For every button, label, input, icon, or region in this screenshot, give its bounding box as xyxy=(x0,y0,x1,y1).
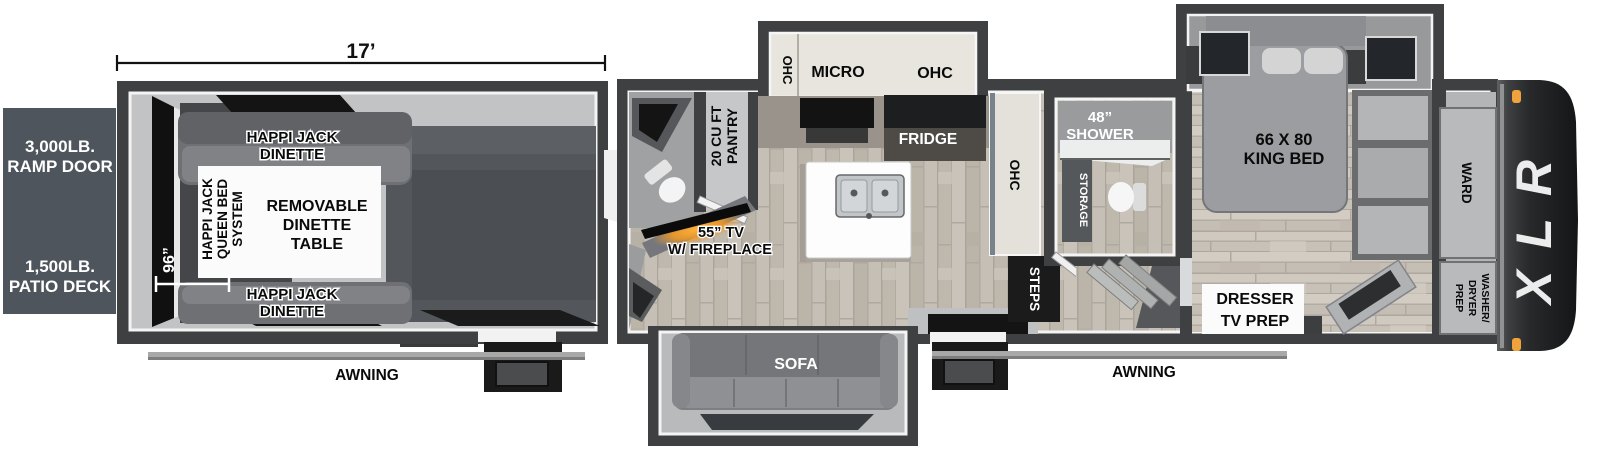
svg-text:REMOVABLE: REMOVABLE xyxy=(266,198,367,215)
svg-text:3,000LB.: 3,000LB. xyxy=(25,137,95,156)
svg-text:HAPPI JACK: HAPPI JACK xyxy=(247,129,338,146)
svg-text:DRYER: DRYER xyxy=(1466,280,1478,317)
svg-text:TABLE: TABLE xyxy=(291,236,343,253)
svg-text:RAMP DOOR: RAMP DOOR xyxy=(7,157,112,176)
svg-text:96”: 96” xyxy=(161,247,178,273)
svg-text:55” TV: 55” TV xyxy=(698,225,744,241)
svg-text:SOFA: SOFA xyxy=(774,356,818,373)
svg-text:SYSTEM: SYSTEM xyxy=(230,191,245,247)
svg-text:AWNING: AWNING xyxy=(1112,364,1176,381)
svg-text:DRESSER: DRESSER xyxy=(1216,291,1294,308)
svg-text:STORAGE: STORAGE xyxy=(1077,173,1089,227)
svg-text:OHC: OHC xyxy=(1007,159,1023,190)
svg-text:AWNING: AWNING xyxy=(335,367,399,384)
svg-text:OHC: OHC xyxy=(917,65,953,82)
svg-text:TV PREP: TV PREP xyxy=(1221,313,1290,330)
svg-text:W/ FIREPLACE: W/ FIREPLACE xyxy=(668,242,772,258)
svg-text:FRIDGE: FRIDGE xyxy=(899,131,958,148)
svg-text:20 CU FT: 20 CU FT xyxy=(708,105,724,166)
svg-text:STEPS: STEPS xyxy=(1027,267,1042,311)
svg-text:MICRO: MICRO xyxy=(811,64,864,81)
svg-text:HAPPI JACK: HAPPI JACK xyxy=(247,286,338,303)
svg-text:66 X 80: 66 X 80 xyxy=(1256,131,1313,149)
svg-text:PANTRY: PANTRY xyxy=(724,107,740,164)
svg-text:XLR: XLR xyxy=(1506,138,1562,307)
svg-text:HAPPI JACK: HAPPI JACK xyxy=(200,178,215,260)
svg-text:1,500LB.: 1,500LB. xyxy=(25,257,95,276)
svg-text:KING BED: KING BED xyxy=(1244,150,1325,168)
svg-text:DINETTE: DINETTE xyxy=(260,146,324,163)
svg-text:48”: 48” xyxy=(1088,109,1112,126)
svg-text:PREP: PREP xyxy=(1453,284,1465,313)
svg-text:17’: 17’ xyxy=(346,40,375,63)
svg-text:DINETTE: DINETTE xyxy=(260,303,324,320)
svg-text:PATIO DECK: PATIO DECK xyxy=(9,277,112,296)
svg-text:DINETTE: DINETTE xyxy=(283,217,352,234)
svg-text:OHC: OHC xyxy=(780,56,795,86)
svg-text:QUEEN BED: QUEEN BED xyxy=(215,179,230,260)
svg-text:SHOWER: SHOWER xyxy=(1066,126,1134,143)
svg-text:WARD: WARD xyxy=(1459,162,1474,203)
svg-text:WASHER/: WASHER/ xyxy=(1479,273,1491,322)
